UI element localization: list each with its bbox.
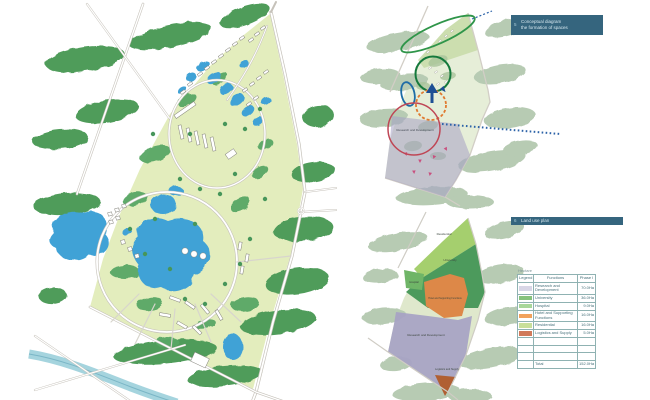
table-row: University 36.0Ha: [518, 294, 596, 302]
section-6-number: 6: [514, 219, 521, 224]
function-cell: Research and Development: [534, 283, 578, 295]
table-row: Hotel and Supporting Functions 16.0Ha: [518, 310, 596, 322]
function-cell: [534, 338, 578, 346]
legend-swatch-cell: [518, 330, 534, 338]
area-cell: 152.0Ha: [578, 360, 596, 368]
section-5-title-line2: the formation of spaces: [521, 25, 568, 31]
table-header-row: Legend Functions Phase I: [518, 275, 596, 283]
legend-swatch: [519, 323, 532, 328]
legend-swatch: [519, 354, 532, 359]
area-cell: 5.0Ha: [578, 330, 596, 338]
function-cell: Logistics and Supply: [534, 330, 578, 338]
legend-swatch: [519, 296, 532, 301]
masterplan-sheet: Research and Development: [0, 0, 650, 400]
label-hospital: Hospital: [409, 280, 419, 284]
area-cell: [578, 353, 596, 361]
section-6-title: Land use plan: [521, 219, 549, 224]
table-row: [518, 345, 596, 353]
land-use-table: Legend Functions Phase I Research and De…: [517, 274, 596, 369]
section-5-title: Conceptual diagram the formation of spac…: [521, 19, 568, 31]
concept-rnd-label: Research and Development: [396, 128, 433, 132]
table-row: [518, 338, 596, 346]
table-row: [518, 353, 596, 361]
master-plan-illustration: [35, 4, 335, 397]
function-cell: [534, 345, 578, 353]
function-cell: Residential: [534, 322, 578, 330]
col-functions: Functions: [534, 275, 578, 283]
legend-swatch-cell: [518, 310, 534, 322]
legend-swatch: [519, 314, 532, 319]
legend-swatch: [519, 362, 532, 367]
table-row: Total 152.0Ha: [518, 360, 596, 368]
legend-swatch: [519, 331, 532, 336]
legend-swatch: [519, 304, 532, 309]
col-legend: Legend: [518, 275, 534, 283]
concept-diagram: Research and Development: [368, 6, 568, 206]
legend-swatch-cell: [518, 283, 534, 295]
section-6-title-line1: Land use plan: [521, 219, 549, 224]
table-row: Hospital 9.0Ha: [518, 302, 596, 310]
area-cell: [578, 345, 596, 353]
legend-swatch-cell: [518, 345, 534, 353]
area-unit-note: Hectare: [518, 268, 532, 273]
area-cell: 16.0Ha: [578, 310, 596, 322]
label-hotel: Hotel and Supporting Functions: [428, 297, 462, 300]
label-university: University: [443, 258, 457, 262]
label-logistics: Logistics and Supply: [435, 367, 459, 371]
function-cell: University: [534, 294, 578, 302]
legend-swatch-cell: [518, 294, 534, 302]
land-use-plan: Residential University Hospital Hotel an…: [368, 212, 528, 400]
section-6-label: 6 Land use plan: [511, 217, 623, 225]
legend-swatch: [519, 286, 532, 291]
legend-swatch-cell: [518, 353, 534, 361]
area-cell: [578, 338, 596, 346]
label-residential: Residential: [437, 232, 452, 236]
area-cell: 16.0Ha: [578, 322, 596, 330]
legend-swatch-cell: [518, 302, 534, 310]
legend-swatch-cell: [518, 338, 534, 346]
function-cell: Hospital: [534, 302, 578, 310]
function-cell: Total: [534, 360, 578, 368]
area-cell: 70.0Ha: [578, 283, 596, 295]
table-row: Research and Development 70.0Ha: [518, 283, 596, 295]
function-cell: Hotel and Supporting Functions: [534, 310, 578, 322]
legend-swatch: [519, 339, 532, 344]
legend-swatch-cell: [518, 322, 534, 330]
legend-swatch-cell: [518, 360, 534, 368]
label-rnd: Research and Development: [407, 333, 444, 337]
section-5-label: 5 Conceptual diagram the formation of sp…: [511, 15, 603, 35]
legend-swatch: [519, 347, 532, 352]
function-cell: [534, 353, 578, 361]
table-row: Logistics and Supply 5.0Ha: [518, 330, 596, 338]
area-cell: 9.0Ha: [578, 302, 596, 310]
area-cell: 36.0Ha: [578, 294, 596, 302]
section-5-number: 5: [514, 22, 521, 28]
land-use-table-body: Research and Development 70.0Ha Universi…: [518, 283, 596, 369]
table-row: Residential 16.0Ha: [518, 322, 596, 330]
col-phase: Phase I: [578, 275, 596, 283]
